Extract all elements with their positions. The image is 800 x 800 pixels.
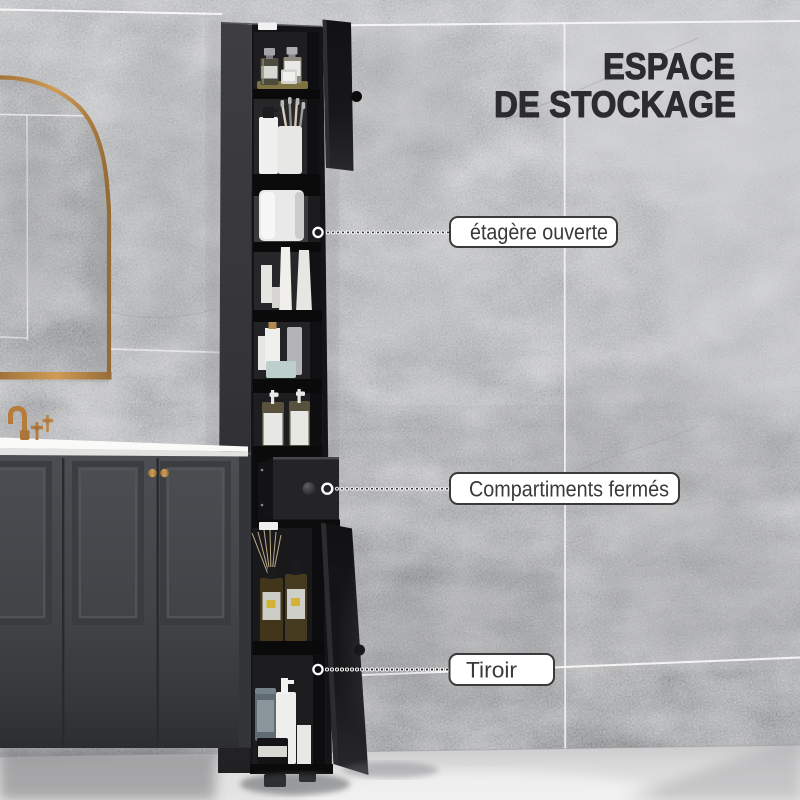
svg-text:Tiroir: Tiroir [466, 658, 517, 683]
svg-text:DE STOCKAGE: DE STOCKAGE [494, 83, 736, 125]
svg-text:étagère ouverte: étagère ouverte [470, 220, 608, 245]
svg-text:Compartiments fermés: Compartiments fermés [469, 477, 669, 502]
svg-text:ESPACE: ESPACE [603, 45, 735, 87]
